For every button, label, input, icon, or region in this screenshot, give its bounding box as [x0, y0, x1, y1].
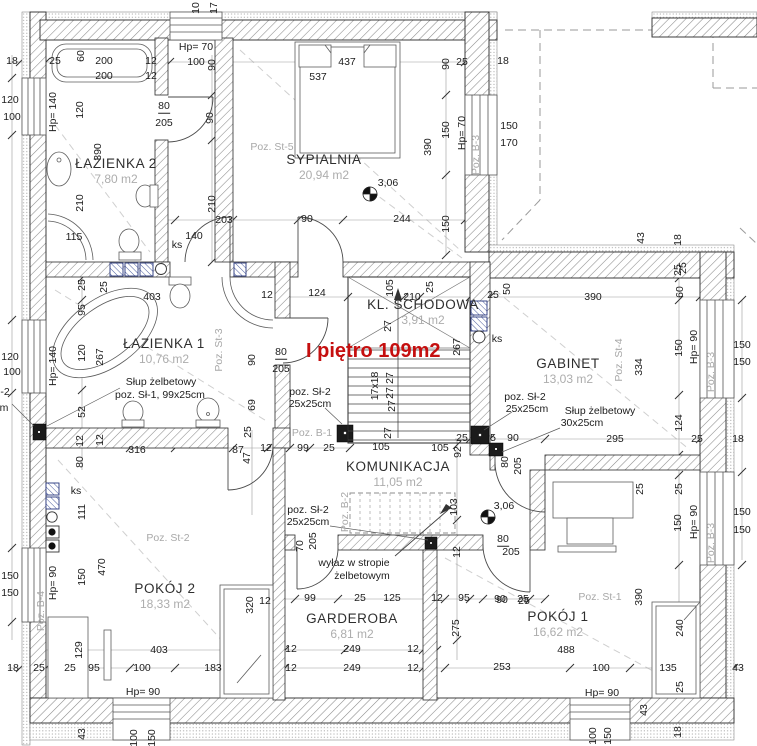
dim-label: 80 — [275, 347, 287, 360]
room-name: POKÓJ 1 — [527, 609, 588, 624]
dim-label: 25 — [99, 281, 110, 293]
dim-label: Poz. B-1 — [292, 428, 332, 439]
dim-label: 25 — [33, 663, 45, 674]
dim-label: 437 — [338, 57, 356, 68]
dim-label: 316 — [128, 445, 146, 456]
dim-label: 275 — [451, 619, 462, 637]
dim-label: 267 — [452, 338, 463, 356]
dim-label: 12 — [260, 443, 272, 454]
dim-label: 25 — [674, 483, 685, 495]
dim-label: 205 — [513, 457, 524, 475]
room-area: 20,94 m2 — [286, 168, 361, 182]
dim-label: 12 — [452, 546, 463, 558]
dim-label: 120 — [77, 344, 88, 362]
dim-label: 25 — [675, 681, 686, 693]
dim-label: 105 — [431, 443, 449, 454]
dim-label: 52 — [77, 406, 88, 418]
room-area: 13,03 m2 — [536, 372, 599, 386]
dim-label: 12 — [431, 593, 443, 604]
dim-label: 92 — [453, 446, 464, 458]
dim-label: 295 — [606, 434, 624, 445]
dim-label: Poz. St-2 — [146, 533, 189, 544]
dim-label: 18 — [732, 434, 744, 445]
dim-label: 150 — [1, 588, 19, 599]
dim-label: Poz. B-3 — [706, 352, 717, 392]
dim-label: 150 — [733, 357, 751, 368]
dim-label: 3,06 — [378, 178, 398, 189]
dim-label: 90 — [207, 59, 218, 71]
washbasin-icon — [47, 152, 71, 186]
dim-label: 69 — [247, 399, 258, 411]
dim-label: 43 — [636, 232, 647, 244]
dim-label: 115 — [66, 232, 83, 243]
dim-label: Poz. B-4 — [36, 591, 47, 631]
dim-label: Poz. B-2 — [340, 492, 351, 532]
dim-label: 170 — [500, 138, 518, 149]
dim-label: 205 — [155, 118, 173, 129]
dim-label: 30x25cm — [561, 418, 604, 429]
dim-label: Słup żelbetowy — [126, 377, 197, 388]
room-area: 3,91 m2 — [367, 313, 479, 327]
dim-label: 90 — [205, 112, 216, 124]
dim-label: 150 — [147, 729, 158, 746]
dim-label: 267 — [95, 348, 106, 366]
dim-label: 240 — [675, 619, 686, 637]
dim-label: wyłaz w stropie — [318, 558, 389, 569]
dim-label: 150 — [441, 215, 452, 233]
room-label: KL. SCHODOWA3,91 m2 — [367, 297, 479, 327]
dim-label: 150 — [603, 727, 614, 745]
room-label: GABINET13,03 m2 — [536, 356, 599, 386]
dim-label: 17x18 — [370, 372, 381, 401]
room-area: 10,76 m2 — [123, 352, 205, 366]
dim-label: 200 — [95, 56, 113, 67]
room-area: 11,05 m2 — [346, 475, 450, 489]
dim-label: 103 — [449, 498, 460, 516]
shower-icon — [222, 277, 273, 328]
dim-label: 90 — [496, 595, 508, 606]
dim-label: 10 — [191, 2, 202, 14]
dim-label: 90 — [301, 214, 313, 225]
dim-label: 205 — [308, 532, 319, 550]
dim-label: Słup żelbetowy — [565, 406, 636, 417]
dim-label: 25 — [691, 434, 703, 445]
dim-label: 25 — [64, 663, 76, 674]
dim-label: 12 — [261, 290, 273, 301]
pillow-icon — [364, 45, 396, 67]
dim-label: 3,06 — [494, 501, 514, 512]
desk-icon — [553, 482, 633, 518]
dim-label: poz. Sł-2 — [504, 392, 545, 403]
dim-label: 537 — [309, 72, 327, 83]
dim-label: 105 — [385, 279, 396, 297]
dim-label: 25 — [243, 426, 254, 438]
dim-label: 25 — [49, 56, 61, 67]
dim-label: 150 — [674, 339, 685, 357]
dim-label: 129 — [74, 641, 85, 659]
room-label: ŁAZIENKA 110,76 m2 — [123, 336, 205, 366]
dim-label: 150 — [673, 514, 684, 532]
dim-label: Hp= 90 — [585, 688, 619, 699]
dim-label: 80 — [500, 456, 511, 468]
dim-label: 249 — [343, 663, 361, 674]
room-name: KL. SCHODOWA — [367, 297, 479, 312]
dim-label: 203 — [215, 215, 233, 226]
dim-label: 25 — [518, 596, 530, 607]
dim-label: 5 — [490, 433, 496, 444]
dim-label: 50 — [502, 283, 513, 295]
dim-label: 135 — [659, 663, 677, 674]
dim-label: 150 — [500, 121, 518, 132]
dim-label: 25x25cm — [506, 404, 549, 415]
dim-label: ks — [172, 240, 183, 251]
dim-label: Hp= 140 — [48, 92, 59, 132]
dim-label: poz. Sł-1, 99x25cm — [115, 390, 205, 401]
dim-label: 60 — [76, 50, 87, 62]
dim-label: żelbetowym — [334, 571, 389, 582]
dim-label: 12 — [95, 434, 106, 446]
dim-label: 99 — [297, 443, 309, 454]
dim-label: 150 — [77, 568, 88, 586]
dim-label: Poz. St-4 — [614, 338, 625, 381]
dim-label: 90 — [441, 58, 452, 70]
dim-label: 120 — [1, 95, 19, 106]
dim-label: 25 — [77, 279, 88, 291]
dim-label: 43 — [77, 728, 88, 740]
dim-label: 120 — [75, 101, 86, 119]
dim-label: 210 — [207, 195, 218, 213]
dim-label: 150 — [733, 340, 751, 351]
dim-label: poz. Sł-2 — [287, 505, 328, 516]
room-name: GABINET — [536, 356, 599, 371]
dim-label: 334 — [634, 358, 645, 376]
dim-label: 210 — [75, 194, 86, 212]
room-name: ŁAZIENKA 2 — [75, 156, 157, 171]
room-label: GARDEROBA6,81 m2 — [306, 611, 398, 641]
dim-label: 403 — [143, 292, 161, 303]
dim-label: 25 — [635, 483, 646, 495]
dim-label: 70 — [295, 540, 306, 552]
dim-label: 25 — [456, 57, 468, 68]
dim-label: 47 — [242, 452, 253, 464]
dim-label: 27 — [385, 387, 396, 399]
dim-label: 390 — [423, 138, 434, 156]
dim-label: 27 — [387, 400, 398, 412]
room-name: SYPIALNIA — [286, 152, 361, 167]
dim-label: 12 — [285, 644, 297, 655]
dim-label: 124 — [308, 288, 326, 299]
dim-label: 99 — [304, 593, 316, 604]
room-label: ŁAZIENKA 27,80 m2 — [75, 156, 157, 186]
dim-label: 183 — [204, 663, 222, 674]
dim-label: 18 — [6, 56, 18, 67]
dim-label: 25x25cm — [287, 517, 330, 528]
dim-label: 80 — [497, 534, 509, 547]
dim-label: -2 — [0, 387, 9, 398]
dim-label: 27 — [385, 372, 396, 384]
dim-label: 90 — [507, 433, 519, 444]
room-name: GARDEROBA — [306, 611, 398, 626]
dim-label: 43 — [732, 663, 744, 674]
dim-label: 43 — [639, 704, 650, 716]
dim-label: 25 — [487, 290, 499, 301]
dim-label: 111 — [77, 504, 88, 520]
dim-label: Poz. St-3 — [214, 328, 225, 371]
room-area: 16,62 m2 — [527, 625, 588, 639]
dim-label: ks — [71, 486, 82, 497]
dim-label: 12 — [145, 71, 157, 82]
dim-label: 100 — [3, 112, 21, 123]
dim-label: 100 — [129, 729, 140, 746]
room-name: KOMUNIKACJA — [346, 459, 450, 474]
dim-label: Hp= 90 — [689, 505, 700, 539]
dim-label: Hp= 90 — [48, 566, 59, 600]
dim-label: 17 — [209, 2, 220, 14]
dim-label: 95 — [458, 593, 470, 604]
dim-label: Poz. B-3 — [706, 523, 717, 563]
dim-label: 150 — [1, 571, 19, 582]
dim-label: 125 — [383, 593, 401, 604]
dim-label: 18 — [7, 663, 19, 674]
toilet-icon — [119, 229, 139, 253]
dim-label: 488 — [557, 645, 575, 656]
dim-label: 150 — [441, 121, 452, 139]
dim-label: 320 — [245, 596, 256, 614]
dim-label: 95 — [77, 304, 88, 316]
dim-label: ks — [492, 334, 503, 345]
dim-label: 25 — [323, 443, 335, 454]
dim-label: Hp= 140 — [48, 346, 59, 386]
dim-label: 253 — [493, 662, 511, 673]
dim-label: 244 — [393, 214, 411, 225]
roof-outline — [502, 30, 757, 244]
dim-label: 249 — [343, 644, 361, 655]
dim-label: 140 — [185, 231, 203, 242]
dim-label: Poz. B-3 — [471, 135, 482, 175]
dim-label: 100 — [592, 663, 610, 674]
dim-label: 100 — [187, 57, 205, 68]
dim-label: 18 — [673, 234, 684, 246]
dim-label: 60 — [675, 286, 686, 298]
dim-label: 100 — [588, 727, 599, 745]
room-label: POKÓJ 218,33 m2 — [134, 581, 195, 611]
dim-label: 205 — [272, 364, 290, 375]
room-name: POKÓJ 2 — [134, 581, 195, 596]
dim-label: 150 — [733, 507, 751, 518]
room-name: ŁAZIENKA 1 — [123, 336, 205, 351]
dim-label: 100 — [133, 663, 151, 674]
dim-label: Hp= 90 — [126, 687, 160, 698]
dim-label: 150 — [733, 525, 751, 536]
dim-label: Poz. St-5 — [250, 142, 293, 153]
dim-label: 18 — [497, 56, 509, 67]
dim-label: Hp= 70 — [179, 42, 213, 53]
dim-label: 124 — [674, 414, 685, 432]
dim-label: 100 — [3, 367, 21, 378]
dim-label: m — [0, 403, 8, 414]
floor-title: I piętro 109m2 — [306, 340, 441, 363]
pillow-icon — [299, 45, 331, 67]
dim-label: Poz. St-1 — [578, 592, 621, 603]
floor-plan: I piętro 109m2 10171825602001220012Hp= 7… — [0, 0, 757, 746]
dim-label: 390 — [634, 588, 645, 606]
dim-label: poz. Sł-2 — [289, 387, 330, 398]
dim-label: 27 — [383, 427, 394, 439]
toilet-icon — [197, 398, 219, 422]
dim-label: 205 — [502, 547, 520, 558]
room-label: SYPIALNIA20,94 m2 — [286, 152, 361, 182]
dim-label: 403 — [150, 645, 168, 656]
dim-label: 12 — [75, 435, 86, 447]
dim-label: 25 — [456, 433, 468, 444]
dim-label: 25 — [673, 264, 684, 276]
dim-label: 12 — [285, 663, 297, 674]
dim-label: 12 — [407, 663, 419, 674]
room-label: POKÓJ 116,62 m2 — [527, 609, 588, 639]
dim-label: 200 — [95, 71, 113, 82]
dim-label: 80 — [75, 456, 86, 468]
dim-label: 390 — [584, 292, 602, 303]
dim-label: 18 — [673, 726, 684, 738]
level-marker — [363, 187, 377, 201]
dim-label: 95 — [88, 663, 100, 674]
room-area: 7,80 m2 — [75, 172, 157, 186]
dim-label: 80 — [158, 101, 170, 114]
dim-label: Hp= 90 — [689, 330, 700, 364]
dim-label: Hp= 70 — [457, 116, 468, 150]
dim-label: 12 — [145, 56, 157, 67]
dim-label: 470 — [97, 558, 108, 576]
dim-label: 25x25cm — [289, 399, 332, 410]
dim-label: 25 — [354, 593, 366, 604]
dim-label: 105 — [372, 442, 390, 453]
dim-label: 120 — [1, 352, 19, 363]
dim-label: 25 — [425, 281, 436, 293]
dim-label: 12 — [259, 596, 271, 607]
dim-label: 12 — [407, 644, 419, 655]
level-marker — [481, 510, 495, 524]
dim-label: 90 — [247, 354, 258, 366]
room-area: 18,33 m2 — [134, 597, 195, 611]
room-area: 6,81 m2 — [306, 627, 398, 641]
room-label: KOMUNIKACJA11,05 m2 — [346, 459, 450, 489]
